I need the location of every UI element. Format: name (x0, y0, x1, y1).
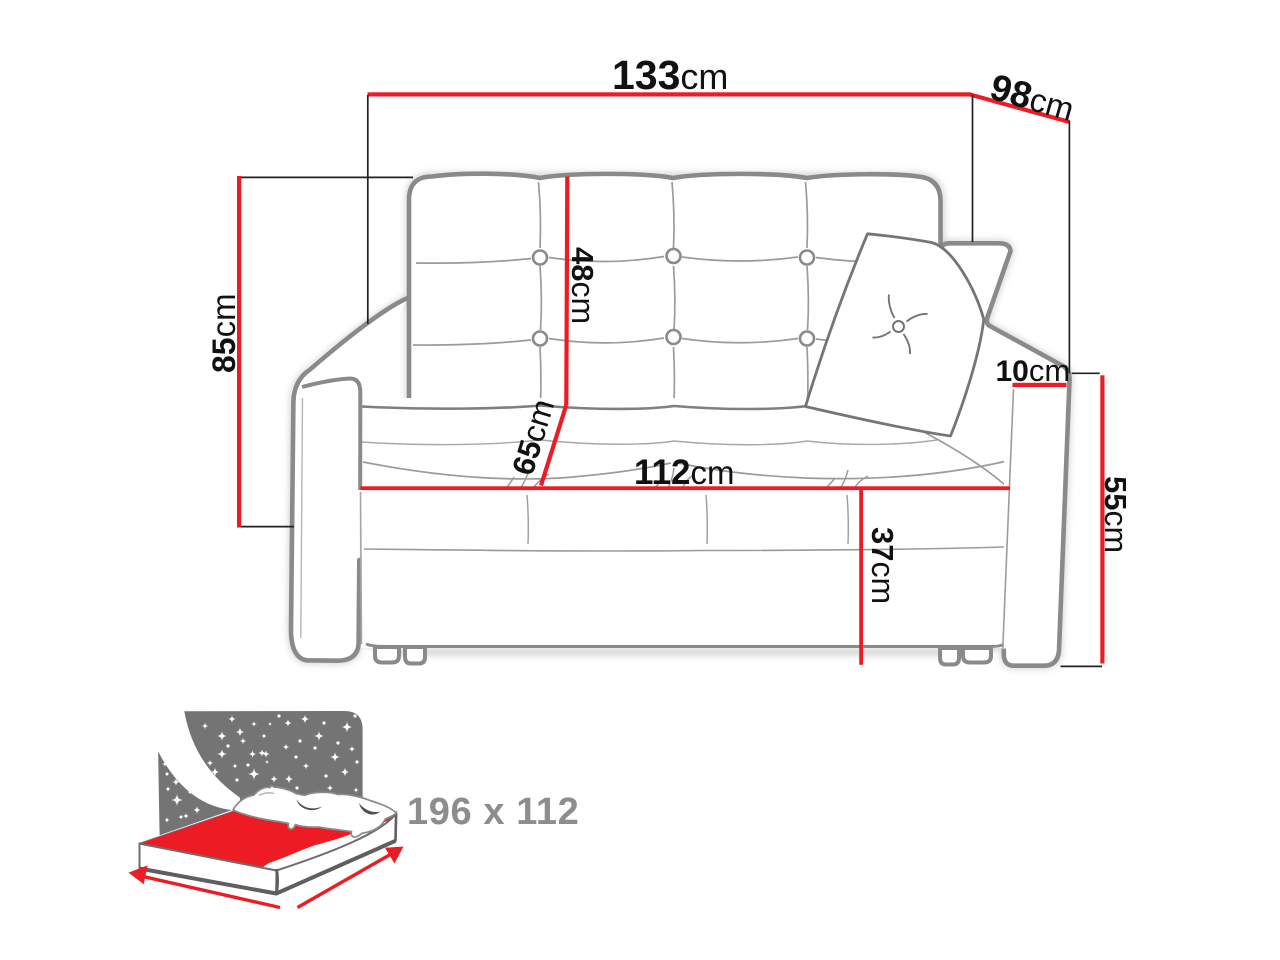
svg-text:133cm: 133cm (612, 52, 728, 98)
svg-text:10cm: 10cm (996, 353, 1071, 388)
svg-text:48cm: 48cm (565, 247, 601, 324)
svg-text:196 x 112: 196 x 112 (407, 791, 579, 833)
svg-text:55cm: 55cm (1098, 476, 1134, 553)
svg-text:98cm: 98cm (986, 66, 1079, 129)
svg-text:112cm: 112cm (634, 453, 734, 492)
svg-text:37cm: 37cm (865, 527, 901, 604)
svg-text:85cm: 85cm (205, 293, 242, 373)
